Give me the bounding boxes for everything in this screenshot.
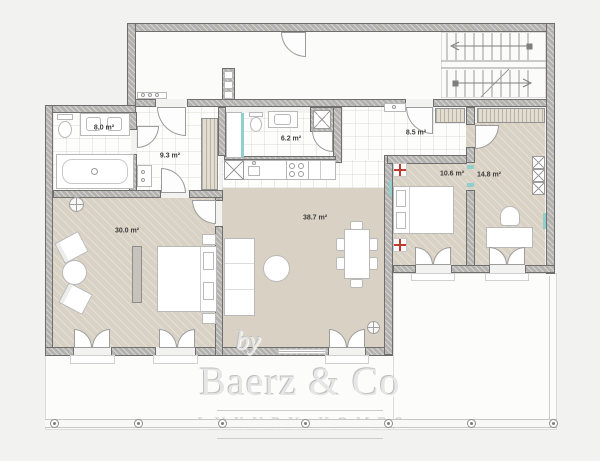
wall-master-top-1: [53, 190, 161, 198]
master-bed-line: [200, 247, 201, 311]
radiator-dot-2: [148, 93, 152, 97]
toilet-bowl: [58, 121, 72, 138]
wall-corridor-bottom-2: [187, 99, 406, 107]
bed-2-line: [409, 187, 410, 233]
wall-wing-bottom-2: [451, 265, 490, 273]
shower-screen: [241, 113, 244, 157]
kitchen-sink: [248, 166, 260, 176]
wall-master-top-2: [189, 190, 223, 198]
wall-bottom-left-2: [111, 347, 156, 356]
dining-table: [344, 229, 370, 279]
wall-corridor-bottom-1: [135, 99, 156, 107]
room-label-landing: 8.5 m²: [406, 130, 426, 137]
nightstand-1: [202, 234, 216, 245]
dining-chair: [336, 238, 345, 251]
ceiling-fan-icon: [367, 321, 380, 334]
window: [278, 349, 326, 354]
desk: [486, 227, 533, 248]
bed-2-pillow-1: [396, 190, 406, 207]
coffee-table: [263, 255, 290, 282]
toilet-tank: [57, 114, 73, 120]
room-label-bedroom-3: 14.8 m²: [477, 172, 501, 179]
nightstand-2: [202, 313, 216, 324]
railing-post: [549, 419, 558, 428]
side-table: [62, 260, 87, 285]
bed-2-pillow-2: [396, 212, 406, 229]
watermark-rule-top: [217, 410, 383, 411]
kitchen-cabinet-x: [224, 160, 244, 180]
wall-top: [127, 23, 555, 32]
burner-1: [289, 163, 295, 169]
toilet-2-bowl: [250, 117, 262, 132]
door-sill: [411, 273, 455, 281]
wall-stub-1: [466, 107, 475, 125]
cabinet-knob-1: [141, 170, 145, 174]
room-label-master-bedroom: 30.0 m²: [115, 228, 139, 235]
door-sill: [485, 273, 529, 281]
railing-post: [218, 419, 227, 428]
dining-chair: [369, 238, 378, 251]
dining-chair: [350, 279, 363, 288]
watermark-prefix: by: [236, 326, 261, 356]
cabinet-knob-2: [141, 178, 145, 182]
heater-icon: [393, 163, 407, 177]
tv-sideboard: [132, 246, 142, 303]
floor-plan: 8.0 m² 9.3 m² 6.2 m² 8.5 m² 10.6 m² 14.8…: [0, 0, 600, 461]
terrace-right: [393, 273, 557, 430]
wall-stub-2: [466, 147, 475, 163]
shaft-icon: [313, 110, 331, 129]
door-sill-teal-2: [467, 183, 474, 187]
wall-bath-hall-1: [129, 112, 137, 130]
room-label-bedroom-2: 10.6 m²: [440, 171, 464, 178]
burner-2: [298, 163, 304, 169]
wall-left: [45, 105, 53, 356]
watermark-brand: Baerz & Co: [180, 358, 420, 405]
railing-post: [384, 419, 393, 428]
wall-corridor-bottom-3: [433, 99, 547, 107]
wardrobe-bedroom-3: [477, 108, 545, 123]
window-sill-teal-1: [389, 180, 392, 196]
wall-wing-bottom-1: [393, 265, 416, 273]
column-box-3: [224, 91, 233, 99]
column-box-1: [224, 71, 233, 79]
room-label-bathroom-1: 8.0 m²: [94, 125, 114, 132]
wall-hallway-right: [218, 107, 226, 156]
wall-bedroom-divider: [466, 190, 475, 266]
dining-chair: [369, 257, 378, 270]
bathtub-drain: [91, 168, 98, 175]
door-sill-teal-1: [467, 165, 474, 169]
hallway-cabinet: [137, 165, 152, 187]
washbasin-3: [274, 114, 291, 125]
window-sill-teal-2: [543, 213, 546, 229]
railing-post: [467, 419, 476, 428]
staircase: [441, 32, 546, 98]
shower: [226, 112, 242, 158]
master-bed-pillow-1: [203, 252, 214, 270]
ceiling-fan-icon: [69, 197, 84, 212]
hall-cabinet-knob: [392, 105, 396, 109]
wall-bath2-right: [333, 107, 342, 163]
terrace-edge-line: [549, 276, 550, 426]
wall-top-left: [45, 105, 136, 113]
door-sill: [70, 355, 115, 364]
master-bed-pillow-2: [203, 282, 214, 300]
shelf-cell-2: [532, 169, 545, 182]
column-box-2: [224, 81, 233, 89]
desk-chair: [500, 206, 520, 226]
counter-divider: [320, 161, 321, 179]
radiator-dot-3: [155, 93, 159, 97]
dining-chair: [336, 257, 345, 270]
room-label-hallway: 9.3 m²: [160, 153, 180, 160]
wardrobe-hallway: [201, 118, 218, 190]
heater-icon: [393, 238, 407, 252]
room-label-living-room: 38.7 m²: [303, 215, 327, 222]
room-label-bathroom-2: 6.2 m²: [281, 136, 301, 143]
watermark-rule-bottom: [217, 438, 383, 439]
shelf-cell-1: [532, 156, 545, 169]
wardrobe-hall: [435, 108, 465, 123]
railing-post: [301, 419, 310, 428]
shelf-cell-3: [532, 182, 545, 195]
railing-post: [134, 419, 143, 428]
radiator-dot-1: [141, 93, 145, 97]
burner-4: [298, 171, 304, 177]
sofa: [224, 238, 255, 316]
wall-wing-bottom-3: [525, 265, 555, 273]
wall-right: [546, 23, 555, 274]
railing-post: [50, 419, 59, 428]
burner-3: [289, 171, 295, 177]
kitchen-faucet: [252, 161, 256, 165]
dining-chair: [350, 221, 363, 230]
